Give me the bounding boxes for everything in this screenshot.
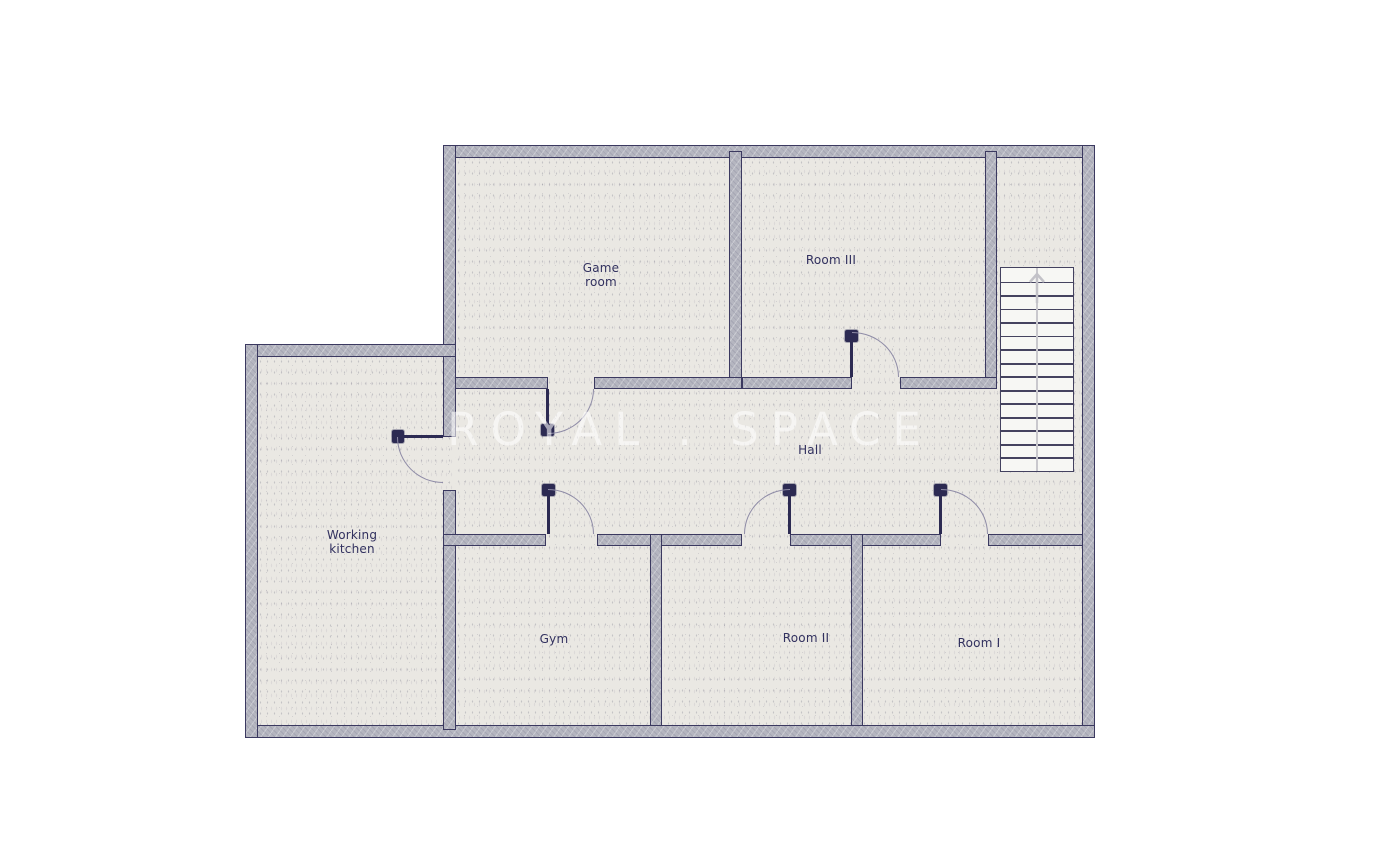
wall-hall-bottom-2 [597,534,742,546]
floor-plan: a o [0,0,1384,868]
wall-hall-top-4 [900,377,997,389]
watermark: ROYAL . SPACE [388,403,992,456]
room-ii-label: Room II [783,631,829,645]
game-room-label-line2: room [583,275,620,289]
wall-hall-bottom-3 [790,534,941,546]
wall-gameroom-roomiii [729,151,742,389]
working-kitchen-label-line1: Working [327,528,377,542]
room-i-label: Room I [958,636,1001,650]
wall-outer-bottom [245,725,1095,738]
gym-label: Gym [540,632,569,646]
game-room-label-line1: Game [583,261,620,275]
wall-hall-top-3 [742,377,852,389]
wall-roomiii-stairs [985,151,997,389]
wall-outer-left-main [443,145,456,357]
wall-gym-roomii [650,534,662,726]
working-kitchen-label: Working kitchen [327,528,377,556]
wall-kitchen-top [245,344,456,357]
wall-kitchen-right-lower [443,490,456,730]
room-iii-label: Room III [806,253,856,267]
game-room-label: Game room [583,261,620,289]
wall-hall-top-1 [443,377,548,389]
wall-outer-top [443,145,1095,158]
staircase [1000,267,1074,472]
wall-hall-bottom-4 [988,534,1083,546]
wall-roomii-roomi [851,534,863,726]
wall-outer-right [1082,145,1095,738]
working-kitchen-label-line2: kitchen [327,542,377,556]
wall-kitchen-left [245,344,258,738]
staircase-up-arrow-icon [1027,270,1047,304]
wall-hall-top-2 [594,377,742,389]
wall-hall-bottom-1 [443,534,546,546]
